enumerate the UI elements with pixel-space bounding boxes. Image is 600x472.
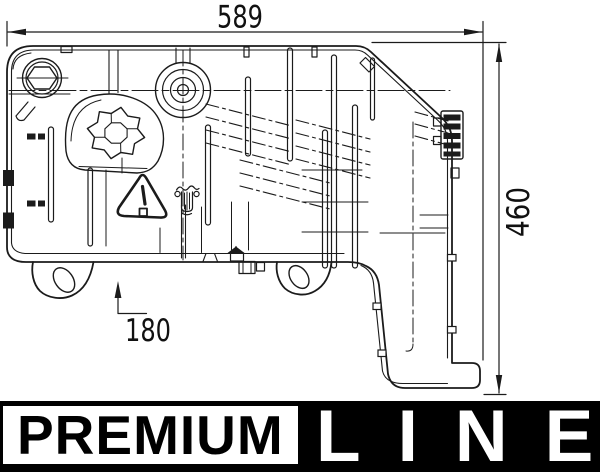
tank-outline (7, 46, 480, 388)
top-edge-tab (312, 47, 317, 57)
dimension-width: 589 (7, 0, 483, 360)
premium-line-banner: PREMIUM LINE (0, 401, 600, 472)
weld-tabs (3, 134, 45, 229)
tank-inner-bottom (12, 243, 345, 254)
line-label: LINE (316, 401, 600, 472)
tank-body (7, 46, 480, 388)
coolant-cap-warning-icon (175, 186, 199, 215)
edge-tick (448, 327, 457, 334)
edge-tick (378, 350, 386, 357)
mounting-foot-left (32, 262, 93, 298)
corner-gusset-arc (13, 53, 31, 69)
dim-height-label: 460 (501, 187, 537, 237)
lower-section-inner (361, 266, 448, 384)
technical-drawing-page: 589 460 180 PREMIUM LINE (0, 0, 600, 472)
edge-tick (448, 255, 457, 262)
expansion-tank-drawing: 589 460 180 (0, 0, 600, 401)
dimension-height: 460 (372, 43, 537, 395)
edge-tick (373, 303, 381, 310)
warning-triangle-icon (118, 175, 166, 218)
top-edge-tab (244, 47, 249, 57)
hex-filler-plug-icon (16, 59, 68, 121)
drain-valve (203, 247, 265, 274)
expansion-cap-icon (65, 50, 163, 173)
dimension-offset: 180 (115, 281, 171, 349)
dim-offset-label: 180 (125, 313, 171, 349)
dim-width-label: 589 (217, 0, 263, 36)
premium-label-box: PREMIUM (3, 406, 298, 464)
port-circles (156, 48, 211, 260)
knurled-cap-star (87, 107, 144, 158)
premium-label: PREMIUM (17, 406, 284, 464)
